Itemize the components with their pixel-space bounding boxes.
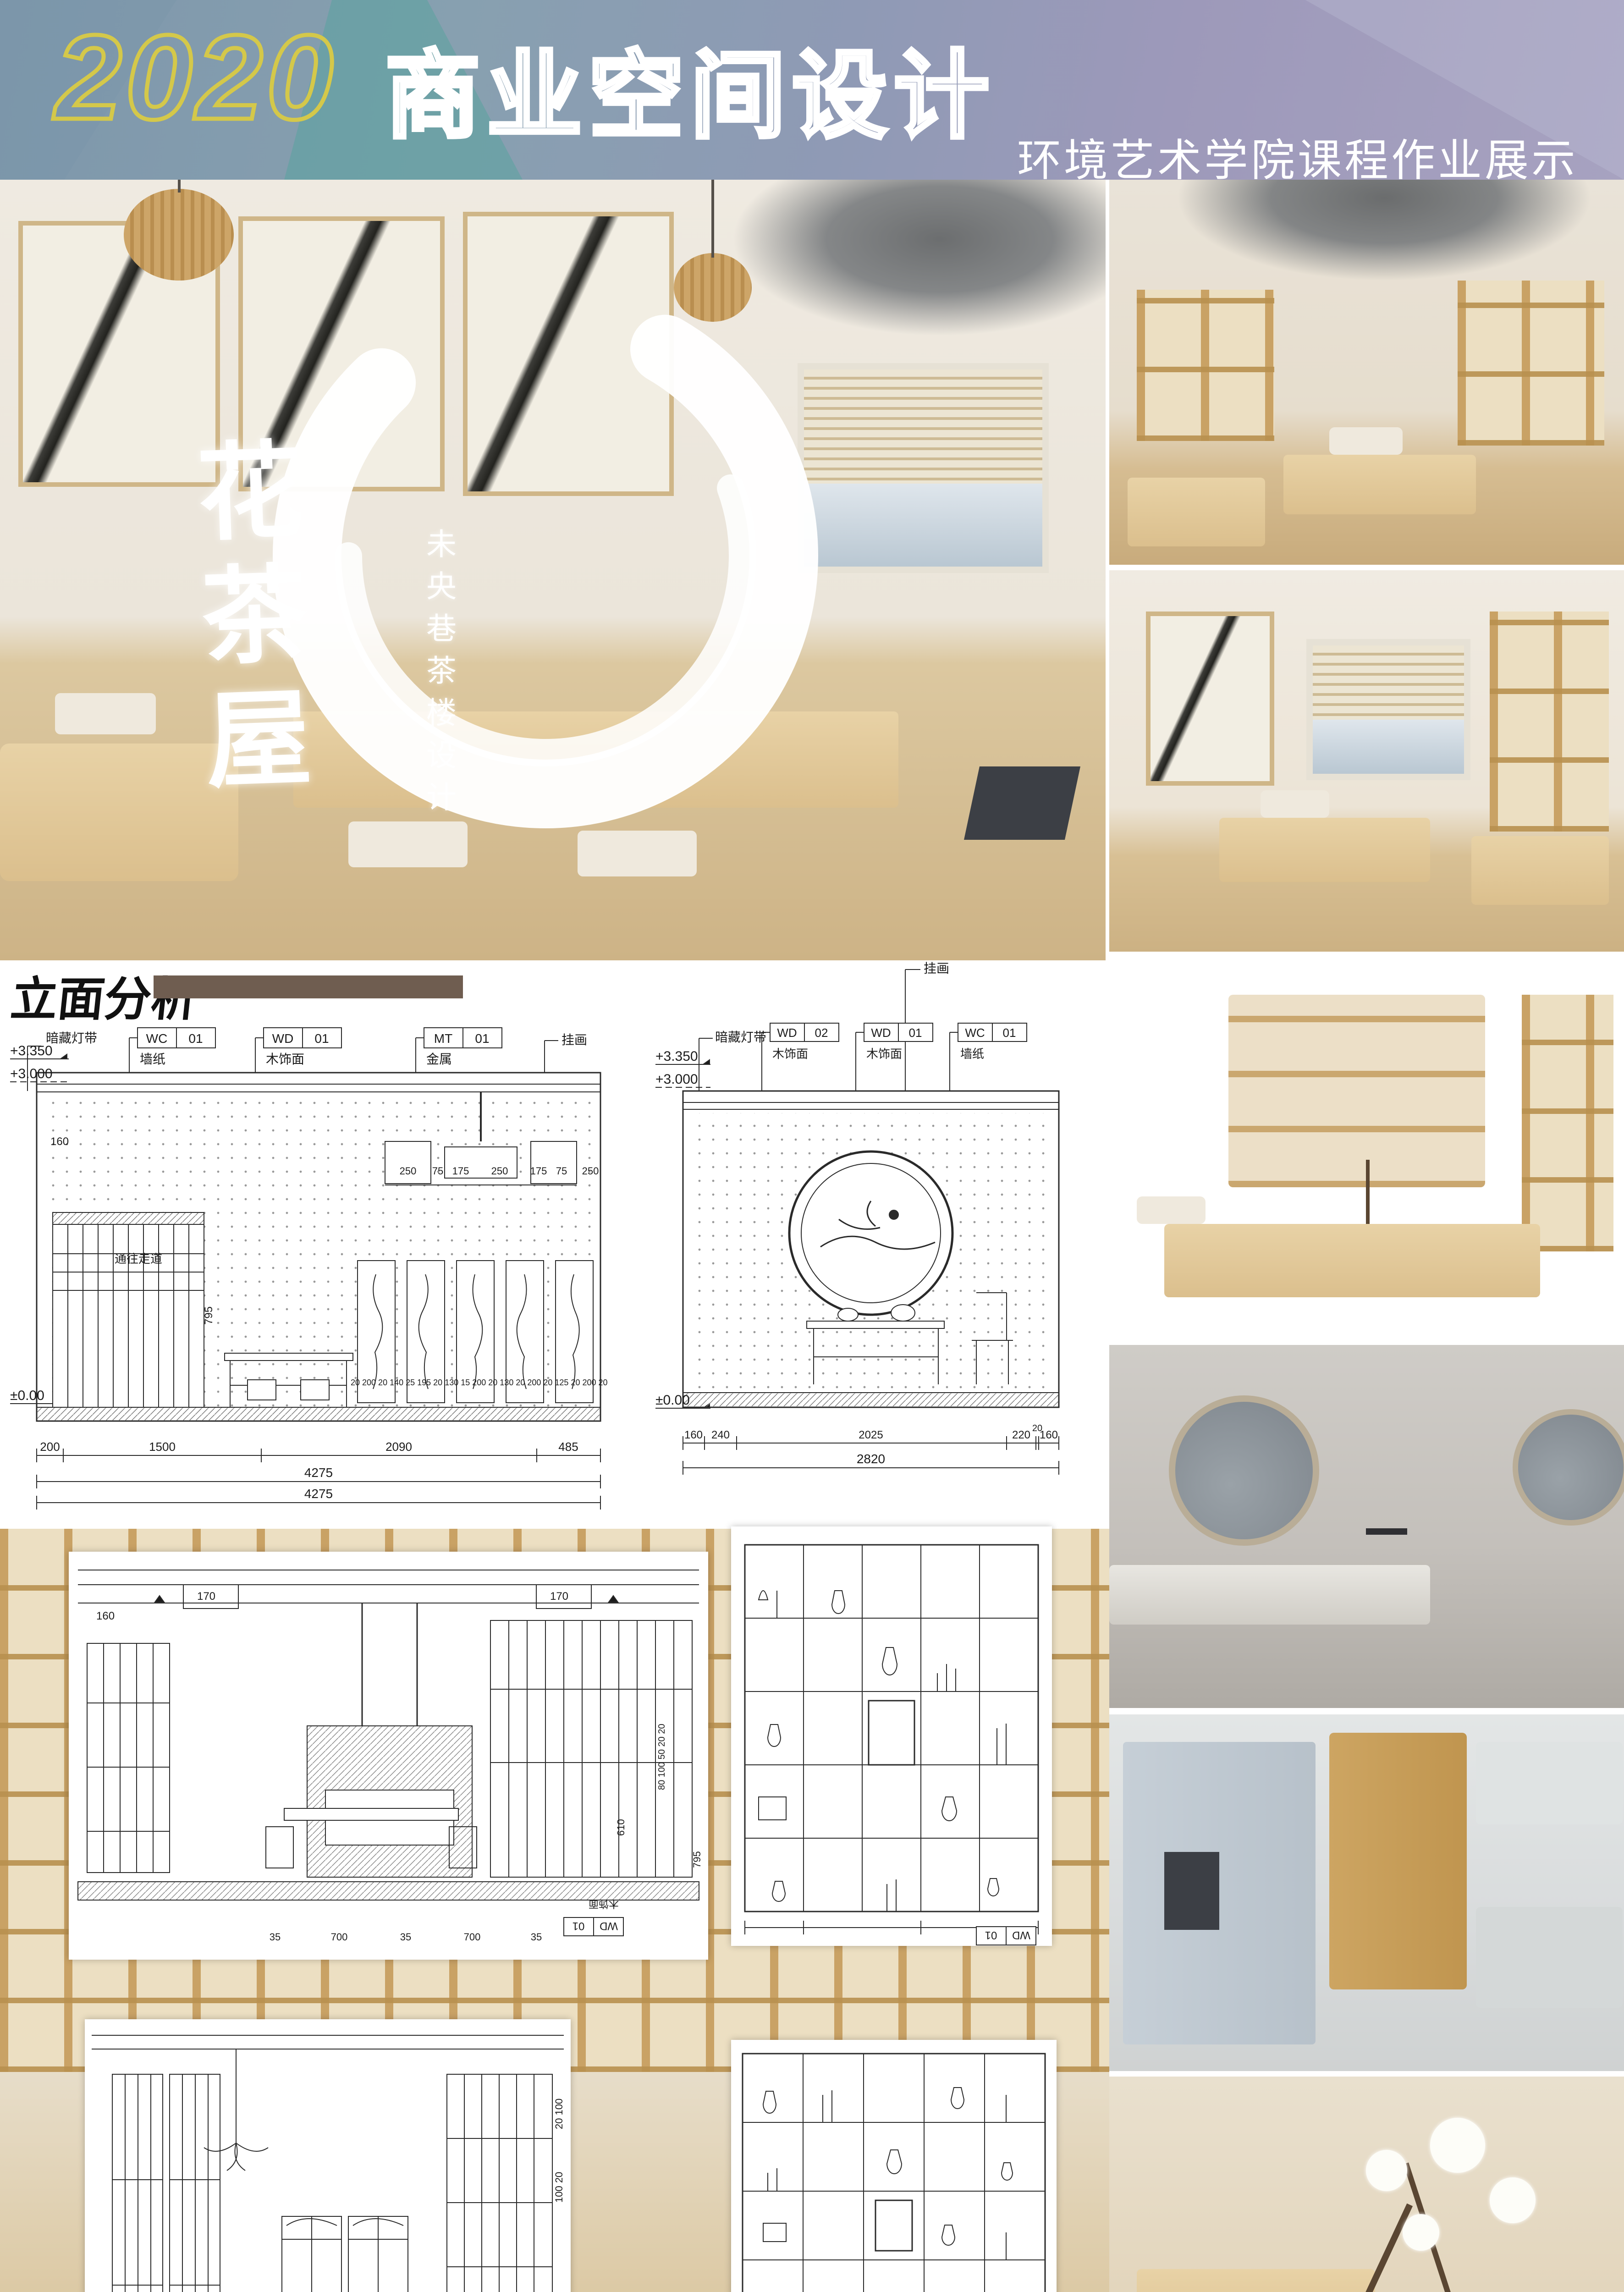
ink-wash-ceiling [1178, 180, 1591, 281]
svg-text:01: 01 [573, 1920, 585, 1932]
render-tearoom-1 [1109, 180, 1624, 565]
svg-text:木饰面: 木饰面 [589, 1898, 619, 1910]
elevation-drawing-2: 挂画 暗藏灯带 WD 02 木饰面 WD 01 木饰面 WC 01 墙纸 +3.… [655, 944, 1091, 1513]
blossoms [1490, 2177, 1536, 2223]
dim-text: 170 [550, 1590, 568, 1603]
dim-text: 240 [711, 1429, 730, 1441]
chair-cushion [55, 693, 156, 734]
bottom-band-photo: 20 100 100 20 [0, 2072, 1109, 2292]
svg-text:WD: WD [600, 1920, 618, 1932]
dim-text: 35 [270, 1931, 281, 1943]
cad-drawing-cabinet-elevation [731, 2040, 1057, 2292]
dim-text: 75 [432, 1165, 443, 1177]
lamp-cord [178, 180, 181, 193]
dim-text: 1500 [149, 1440, 176, 1454]
material-tag-num: 02 [815, 1026, 828, 1040]
dim-text: 175 [452, 1165, 469, 1177]
material-tag-num: 01 [314, 1031, 329, 1046]
tea-table [1471, 836, 1609, 905]
level-marker: +3.350 [655, 1049, 698, 1064]
stone-counter [1109, 1565, 1430, 1625]
material-tag-code: WD [777, 1026, 797, 1040]
dim-text: 250 [582, 1165, 599, 1177]
material-name: 金属 [426, 1052, 452, 1066]
dim-text: 200 [40, 1440, 60, 1454]
dim-text: 175 [530, 1165, 547, 1177]
fridge-dispenser [1164, 1852, 1219, 1930]
cad-drawing-dining-elevation: 170 170 160 35 700 35 700 35 610 795 80 … [69, 1552, 708, 1960]
round-mirror [1169, 1395, 1319, 1546]
level-marker: ±0.00 [655, 1393, 690, 1408]
blossoms [1430, 2118, 1485, 2173]
material-name: 木饰面 [772, 1047, 808, 1061]
level-marker: +3.000 [10, 1066, 53, 1081]
dim-text: 610 [615, 1819, 627, 1836]
level-marker: +3.000 [655, 1072, 698, 1087]
dim-row: 100 20 [553, 2172, 565, 2203]
window-sky-view [1313, 720, 1464, 774]
dim-total: 4275 [304, 1466, 333, 1480]
material-name: 木饰面 [866, 1047, 902, 1061]
dim-text: 35 [400, 1931, 411, 1943]
material-tag-code: WC [965, 1026, 985, 1040]
material-tag-code: WD [272, 1031, 294, 1046]
dim-text: 795 [691, 1851, 703, 1868]
render-tearoom-2 [1109, 570, 1624, 952]
level-marker: ±0.00 [10, 1388, 44, 1403]
elev1-light-label: 暗藏灯带 [46, 1031, 97, 1045]
material-tag-num: 01 [1003, 1026, 1016, 1040]
mid-band: 170 170 160 35 700 35 700 35 610 795 80 … [0, 1529, 1109, 2072]
tea-table [1128, 478, 1265, 546]
chair-cushion [1137, 1196, 1206, 1224]
long-table [1164, 1224, 1540, 1297]
dim-text: 700 [464, 1931, 481, 1943]
heading-accent-bar [154, 975, 463, 998]
logo-name: 花茶屋 [163, 434, 329, 810]
display-shelf [1228, 995, 1485, 1187]
level-marker: +3.350 [10, 1043, 53, 1058]
chair-cushion [1261, 790, 1329, 818]
logo-tagline: 未央巷茶楼设计 [417, 528, 461, 823]
dim-text: 160 [1040, 1429, 1058, 1441]
dim-text: 35 [531, 1931, 542, 1943]
orchid-stem [1366, 1160, 1370, 1224]
shoji-door [1490, 612, 1609, 832]
design-poster: 2020 商业空间设计 环境艺术学院课程作业展示 花茶屋 未央巷茶楼设计 一层 [0, 0, 1624, 2292]
dim-row: 80 100 50 20 20 [657, 1724, 667, 1790]
cad-drawing-bookshelf-elevation: WD 01 [731, 1526, 1052, 1946]
dim-overall: 4275 [304, 1487, 333, 1501]
picture-frame [1146, 612, 1274, 786]
dim-row: 20 200 20 140 25 195 20 130 15 200 20 13… [351, 1378, 608, 1387]
elev1-painting-label: 挂画 [562, 1033, 587, 1047]
dim-row: 20 100 [553, 2099, 565, 2129]
render-kitchen [1109, 1714, 1624, 2071]
dim-text: 485 [558, 1440, 578, 1454]
hero-tearoom-render: 花茶屋 未央巷茶楼设计 一层 [0, 180, 1106, 960]
faucet [1366, 1528, 1407, 1535]
dim-text: 250 [400, 1165, 417, 1177]
render-tearoom-blossom [1109, 2077, 1624, 2292]
shoji-window [1137, 290, 1274, 441]
render-washroom [1109, 1345, 1624, 1708]
round-mirror [1513, 1409, 1624, 1526]
material-name: 墙纸 [960, 1047, 984, 1061]
fridge [1123, 1742, 1316, 2044]
main-title: 商业空间设计 [385, 18, 996, 156]
tea-table [1283, 455, 1476, 514]
tea-table [1219, 818, 1430, 882]
blossoms [1366, 2150, 1407, 2191]
dim-text: 2025 [859, 1429, 883, 1441]
tea-table [1137, 2269, 1375, 2292]
cad-drawing-screen-elevation: 20 100 100 20 [85, 2019, 571, 2292]
shoji-window [1458, 281, 1604, 446]
dim-text: 220 [1012, 1429, 1030, 1441]
material-name: 木饰面 [266, 1052, 304, 1066]
material-tag-num: 01 [188, 1031, 203, 1046]
material-name: 墙纸 [140, 1052, 165, 1066]
dim-text: 160 [684, 1429, 703, 1441]
subtitle: 环境艺术学院课程作业展示 [1017, 125, 1578, 188]
elev2-light-label: 暗藏灯带 [715, 1030, 766, 1044]
dim-text: 160 [96, 1610, 115, 1622]
material-tag-code: WC [146, 1031, 168, 1046]
material-tag-code: MT [434, 1031, 452, 1046]
poster-header: 2020 商业空间设计 环境艺术学院课程作业展示 [0, 0, 1624, 180]
upper-cabinet [1476, 1742, 1623, 1824]
svg-text:WD: WD [1012, 1929, 1030, 1941]
base-cabinet [1476, 1907, 1623, 2008]
render-private-room [1109, 967, 1624, 1339]
dim-text: 160 [50, 1135, 69, 1148]
dim-text: 700 [331, 1931, 348, 1943]
material-tag-code: WD [871, 1026, 891, 1040]
material-tag-num: 01 [475, 1031, 489, 1046]
laptop [964, 766, 1080, 840]
elev2-painting-label: 挂画 [924, 961, 949, 975]
dim-text: 170 [197, 1590, 215, 1603]
shoji-door [1522, 995, 1613, 1251]
tall-cabinet [1329, 1733, 1467, 1989]
year-title: 2020 [55, 8, 337, 147]
blinds-window [1306, 639, 1470, 780]
svg-text:01: 01 [985, 1929, 997, 1941]
corridor-label: 通往走道 [115, 1252, 162, 1266]
chair-cushion [1329, 427, 1403, 455]
dim-text: 250 [491, 1165, 508, 1177]
dim-text: 2090 [385, 1440, 412, 1454]
material-tag-num: 01 [909, 1026, 922, 1040]
dim-total: 2820 [857, 1452, 885, 1466]
blossoms [1403, 2214, 1439, 2251]
rotated-material-tag: WD 01 [976, 1927, 1036, 1945]
dim-text: 795 [203, 1306, 215, 1325]
dim-text: 75 [556, 1165, 567, 1177]
elevation-drawing-1: 暗藏灯带 WC 01 墙纸 WD 01 木饰面 MT 01 金属 挂画 +3.3… [9, 1004, 642, 1513]
